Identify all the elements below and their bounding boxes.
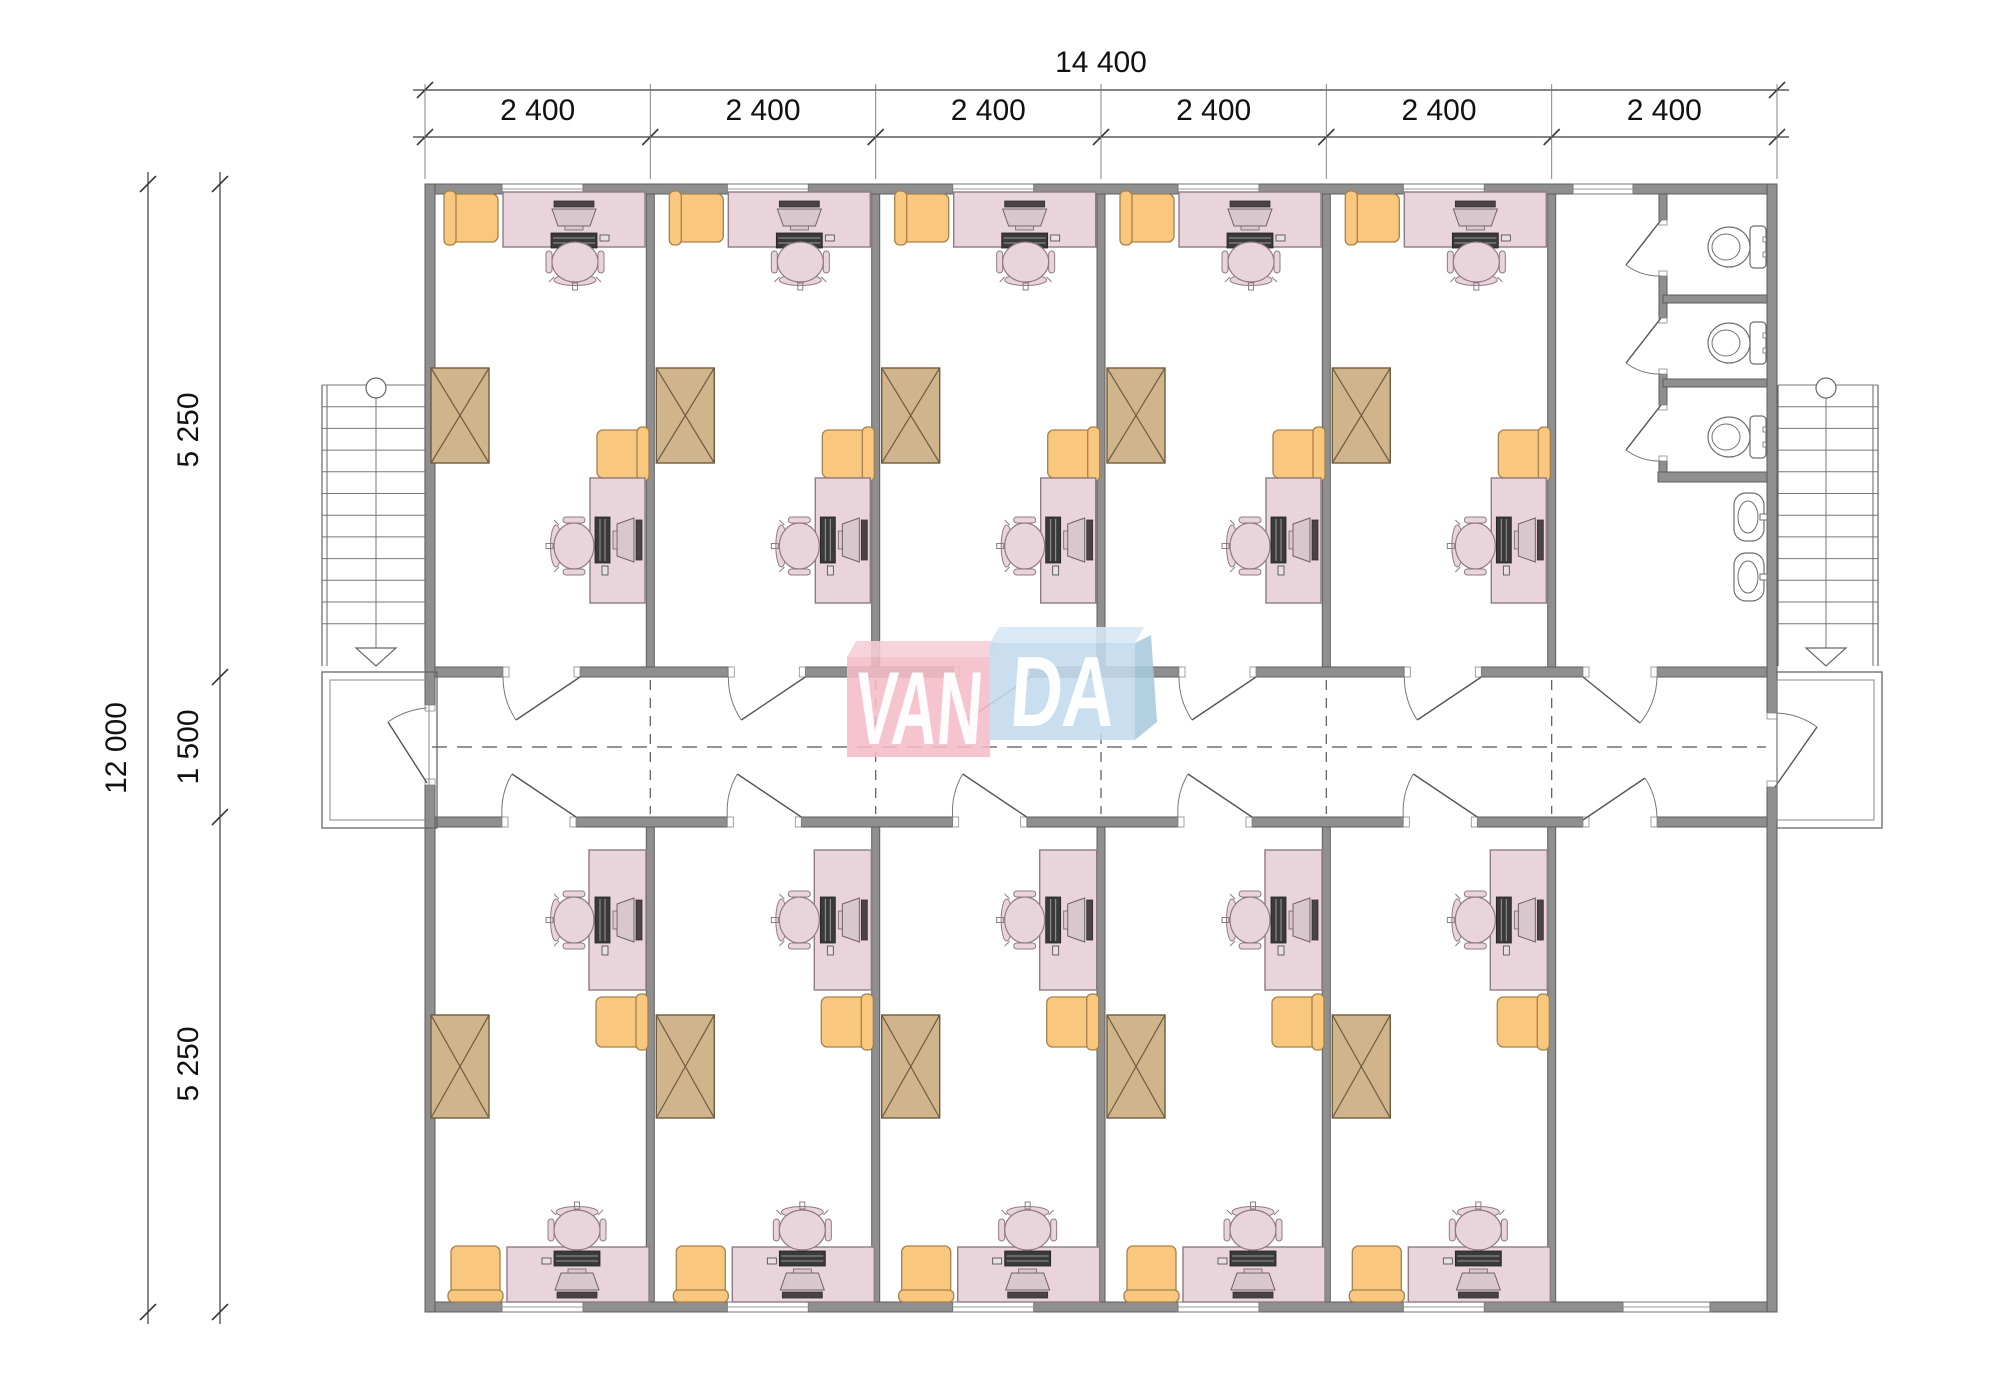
wall-stall-partition (1659, 194, 1667, 220)
wall-corridor-top (1481, 667, 1583, 677)
guest-chair (821, 994, 873, 1050)
office-chair (997, 517, 1045, 575)
door-jamb (1250, 667, 1256, 677)
stairs-left (322, 378, 425, 666)
walls (425, 184, 1777, 1312)
guest-chair (1120, 191, 1174, 245)
guest-chair (596, 994, 648, 1050)
guest-chair (1345, 191, 1399, 245)
window (1623, 1302, 1710, 1312)
storage-cabinet (1332, 368, 1390, 463)
wall-stall-divider (1663, 379, 1767, 387)
window (502, 1302, 583, 1312)
guest-chair (1497, 994, 1549, 1050)
washroom (1626, 220, 1767, 601)
wall-interior (646, 827, 654, 1302)
office-chair (1449, 1202, 1507, 1250)
door (1178, 774, 1252, 817)
wall-corridor-top (1256, 667, 1404, 677)
door-jamb (1659, 369, 1667, 374)
toilet (1708, 322, 1766, 364)
door-jamb (1475, 667, 1481, 677)
dimensions-top: 14 4002 4002 4002 4002 4002 4002 400 (413, 46, 1789, 179)
door-jamb (953, 817, 959, 827)
storage-cabinet (1332, 1015, 1390, 1118)
window (1178, 1302, 1259, 1312)
toilet (1708, 226, 1766, 268)
office-room-top-3 (882, 191, 1100, 603)
door-jamb (795, 817, 801, 827)
wall-corridor-bottom (801, 817, 952, 827)
guest-chair (597, 427, 649, 481)
door-jamb (727, 817, 733, 827)
door-jamb (502, 817, 508, 827)
wall-corridor-bottom (1027, 817, 1178, 827)
stair-start-circle (1816, 378, 1836, 398)
door (727, 774, 801, 817)
guest-chair (899, 1246, 954, 1302)
guest-chair (1498, 427, 1550, 481)
office-chair (1222, 242, 1280, 290)
office-chair (1222, 517, 1270, 575)
door-jamb (1651, 817, 1657, 827)
wall-corridor-top (580, 667, 728, 677)
door-jamb (1178, 817, 1184, 827)
office-chair (997, 891, 1045, 949)
dimensions-left: 12 0005 2501 5005 250 (100, 172, 228, 1324)
office-chair (1447, 891, 1495, 949)
guest-chair (1048, 427, 1100, 481)
office-room-top-5 (1332, 191, 1550, 603)
windows (502, 184, 1710, 1312)
stall-door (1626, 405, 1661, 461)
door-jamb (728, 667, 734, 677)
office-room-bottom-2 (656, 850, 874, 1302)
guest-chair (895, 191, 949, 245)
sink (1734, 493, 1767, 541)
office-room-bottom-1 (431, 850, 649, 1302)
door (1179, 677, 1256, 720)
door-jamb (1583, 667, 1589, 677)
wall-exterior-right (1767, 184, 1777, 713)
office-room-bottom-3 (882, 850, 1100, 1302)
stairs-right (1778, 378, 1878, 666)
door-jamb (574, 667, 580, 677)
office-chair (771, 517, 819, 575)
guest-chair (1272, 994, 1324, 1050)
floor-plan-page: 14 4002 4002 4002 4002 4002 4002 40012 0… (0, 0, 2000, 1380)
wall-stall-bottom (1658, 472, 1767, 482)
guest-chair (822, 427, 874, 481)
office-chair (1447, 242, 1505, 290)
toilet (1708, 416, 1766, 458)
office-chair (546, 242, 604, 290)
door-jamb (1404, 667, 1410, 677)
sink (1734, 553, 1767, 601)
dim-label-height-segment: 5 250 (172, 392, 205, 467)
door-jamb (503, 667, 509, 677)
office-room-top-4 (1107, 191, 1325, 603)
stall-door (1626, 220, 1661, 276)
stall-door (1626, 318, 1661, 374)
storage-cabinet (656, 1015, 714, 1118)
dim-label-height-segment: 1 500 (172, 709, 205, 784)
guest-chair (673, 1246, 728, 1302)
dim-label-bay: 2 400 (725, 94, 800, 127)
wall-corridor-bottom (1657, 817, 1767, 827)
office-chair (1224, 1202, 1282, 1250)
door (952, 774, 1026, 817)
door (1583, 778, 1657, 820)
door (728, 677, 805, 720)
office-room-bottom-5 (1332, 850, 1550, 1302)
guest-chair (444, 191, 498, 245)
door-jamb (1651, 667, 1657, 677)
entrance-door (388, 708, 427, 783)
wall-stall-divider (1663, 295, 1767, 303)
office-chair (1222, 891, 1270, 949)
office-chair (999, 1202, 1057, 1250)
floor-plan-drawing: 14 4002 4002 4002 4002 4002 4002 40012 0… (0, 0, 2000, 1380)
vanda-logo: VANDA (847, 627, 1157, 767)
storage-cabinet (1107, 1015, 1165, 1118)
office-chair (997, 242, 1055, 290)
dim-label-bay: 2 400 (1176, 94, 1251, 127)
door-jamb (1659, 271, 1667, 276)
door-jamb (1403, 817, 1409, 827)
wall-interior (1548, 827, 1556, 1302)
door-jamb (1246, 817, 1252, 827)
dim-label-total-height: 12 000 (100, 702, 133, 794)
storage-cabinet (882, 368, 940, 463)
door-jamb (1471, 817, 1477, 827)
dim-label-bay: 2 400 (500, 94, 575, 127)
office-chair (771, 242, 829, 290)
window (953, 1302, 1034, 1312)
storage-cabinet (882, 1015, 940, 1118)
guest-chair (1124, 1246, 1179, 1302)
office-room-top-1 (431, 191, 649, 603)
door-jamb (1767, 713, 1777, 719)
door-jamb (799, 667, 805, 677)
door (503, 677, 580, 720)
wall-interior (1322, 827, 1330, 1302)
door-jamb (570, 817, 576, 827)
dim-label-bay: 2 400 (951, 94, 1026, 127)
office-chair (548, 1202, 606, 1250)
wall-corridor-bottom (435, 817, 502, 827)
door (502, 774, 576, 817)
stair-start-circle (366, 378, 386, 398)
office-chair (1447, 517, 1495, 575)
wall-exterior-bottom (425, 1302, 1777, 1312)
guest-chair (448, 1246, 503, 1302)
porch-left (322, 672, 437, 828)
door (1583, 677, 1657, 723)
storage-cabinet (431, 368, 489, 463)
guest-chair (1047, 994, 1099, 1050)
wall-corridor-bottom (1252, 817, 1403, 827)
wall-interior (1097, 827, 1105, 1302)
door-jamb (1021, 817, 1027, 827)
wall-stall-partition (1659, 461, 1667, 472)
office-chair (546, 517, 594, 575)
porch-right (1777, 672, 1882, 828)
dim-label-bay: 2 400 (1401, 94, 1476, 127)
wall-corridor-top (1657, 667, 1767, 677)
guest-chair (1349, 1246, 1404, 1302)
window (1403, 1302, 1484, 1312)
wall-corridor-top (435, 667, 503, 677)
dim-label-height-segment: 5 250 (172, 1026, 205, 1101)
storage-cabinet (1107, 368, 1165, 463)
door (1403, 774, 1477, 817)
guest-chair (669, 191, 723, 245)
office-room-top-2 (656, 191, 874, 603)
office-chair (771, 891, 819, 949)
wall-corridor-bottom (1477, 817, 1583, 827)
entrance-door (1775, 713, 1817, 787)
wall-interior (872, 827, 880, 1302)
logo-text-van: VAN (851, 651, 986, 767)
storage-cabinet (656, 368, 714, 463)
stair-direction-arrow (1806, 648, 1846, 666)
wall-corridor-bottom (576, 817, 727, 827)
stair-direction-arrow (356, 648, 396, 666)
door-jamb (1179, 667, 1185, 677)
office-chair (773, 1202, 831, 1250)
dim-label-bay: 2 400 (1627, 94, 1702, 127)
office-chair (546, 891, 594, 949)
window (727, 1302, 808, 1312)
door-jamb (1659, 456, 1667, 461)
door (1404, 677, 1481, 720)
storage-cabinet (431, 1015, 489, 1118)
dim-label-total-width: 14 400 (1055, 46, 1147, 79)
wall-exterior-right (1767, 787, 1777, 1312)
logo-text-da: DA (1007, 636, 1119, 747)
guest-chair (1273, 427, 1325, 481)
window (1573, 184, 1633, 194)
office-room-bottom-4 (1107, 850, 1325, 1302)
